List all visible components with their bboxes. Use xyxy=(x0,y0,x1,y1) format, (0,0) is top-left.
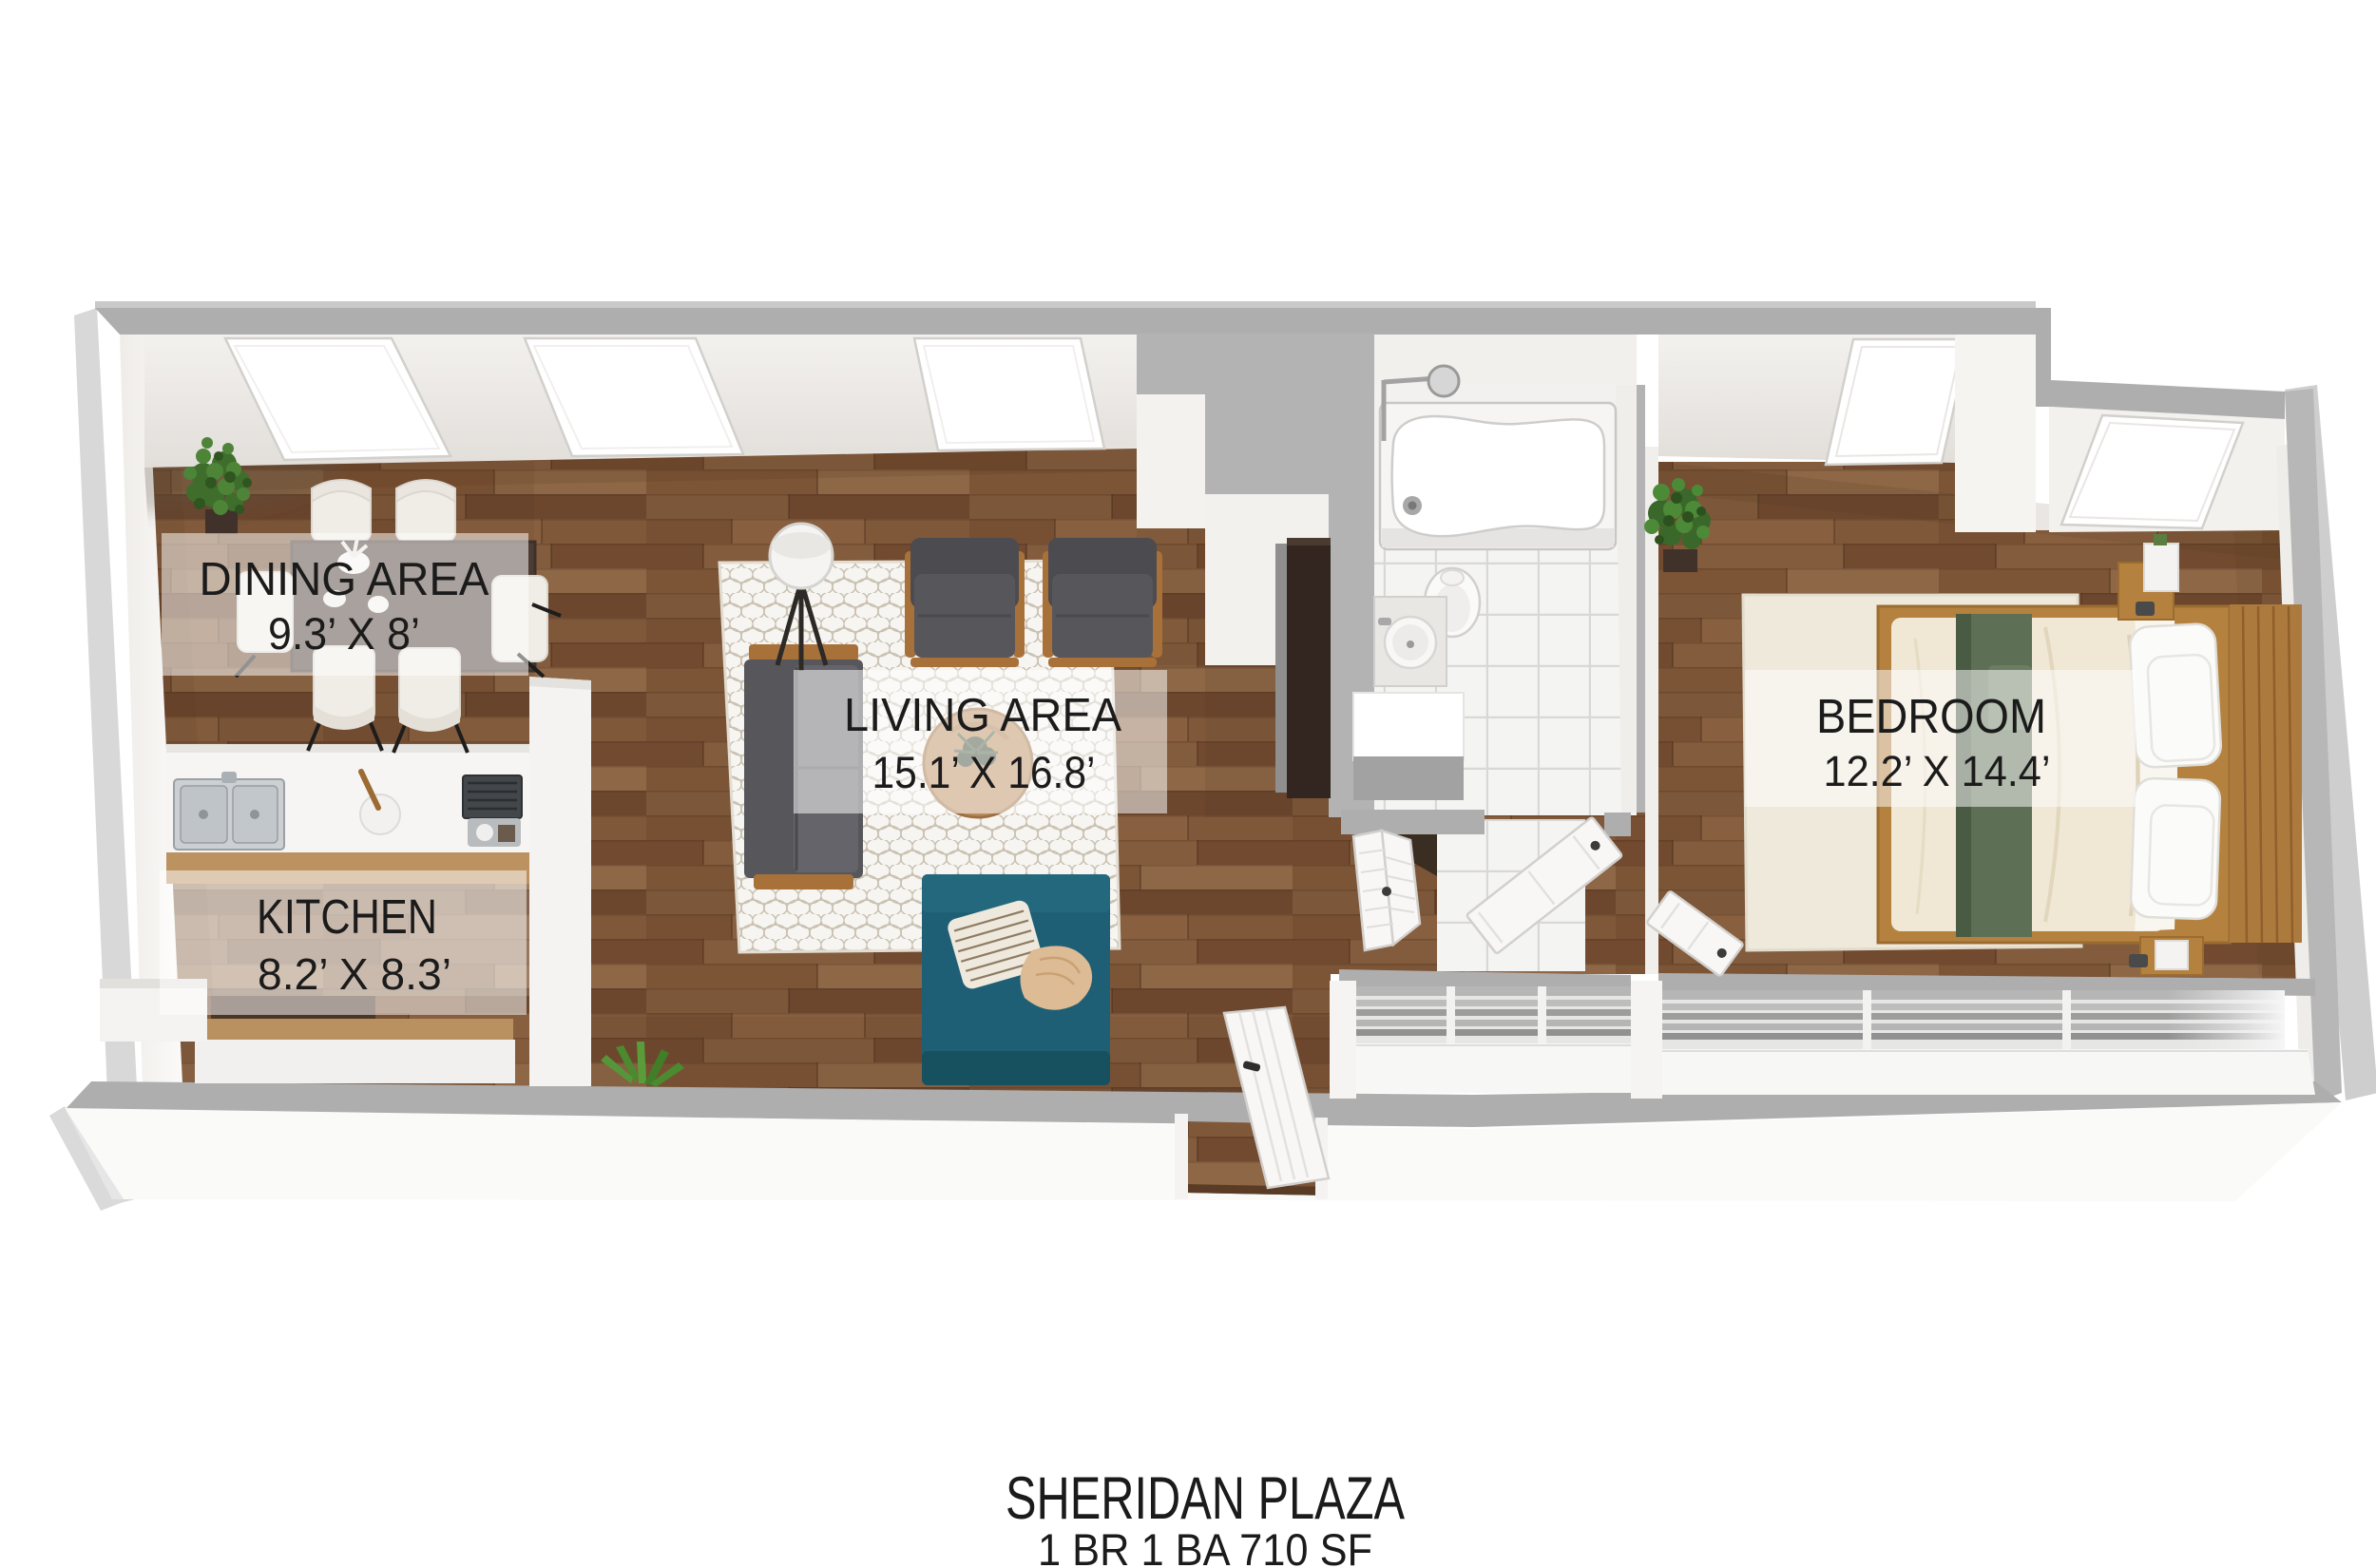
svg-text:DINING AREA: DINING AREA xyxy=(200,554,489,605)
svg-text:SHERIDAN PLAZA: SHERIDAN PLAZA xyxy=(1006,1465,1405,1532)
svg-text:9.3’ X 8’: 9.3’ X 8’ xyxy=(268,608,420,659)
svg-text:BEDROOM: BEDROOM xyxy=(1816,689,2046,743)
svg-text:15.1’ X 16.8’: 15.1’ X 16.8’ xyxy=(872,747,1096,797)
svg-text:8.2’ X 8.3’: 8.2’ X 8.3’ xyxy=(258,949,451,999)
svg-text:LIVING AREA: LIVING AREA xyxy=(844,690,1121,741)
svg-text:1 BR 1 BA 710 SF: 1 BR 1 BA 710 SF xyxy=(1038,1524,1372,1568)
svg-text:KITCHEN: KITCHEN xyxy=(257,889,437,944)
svg-text:12.2’ X 14.4’: 12.2’ X 14.4’ xyxy=(1824,747,2051,795)
